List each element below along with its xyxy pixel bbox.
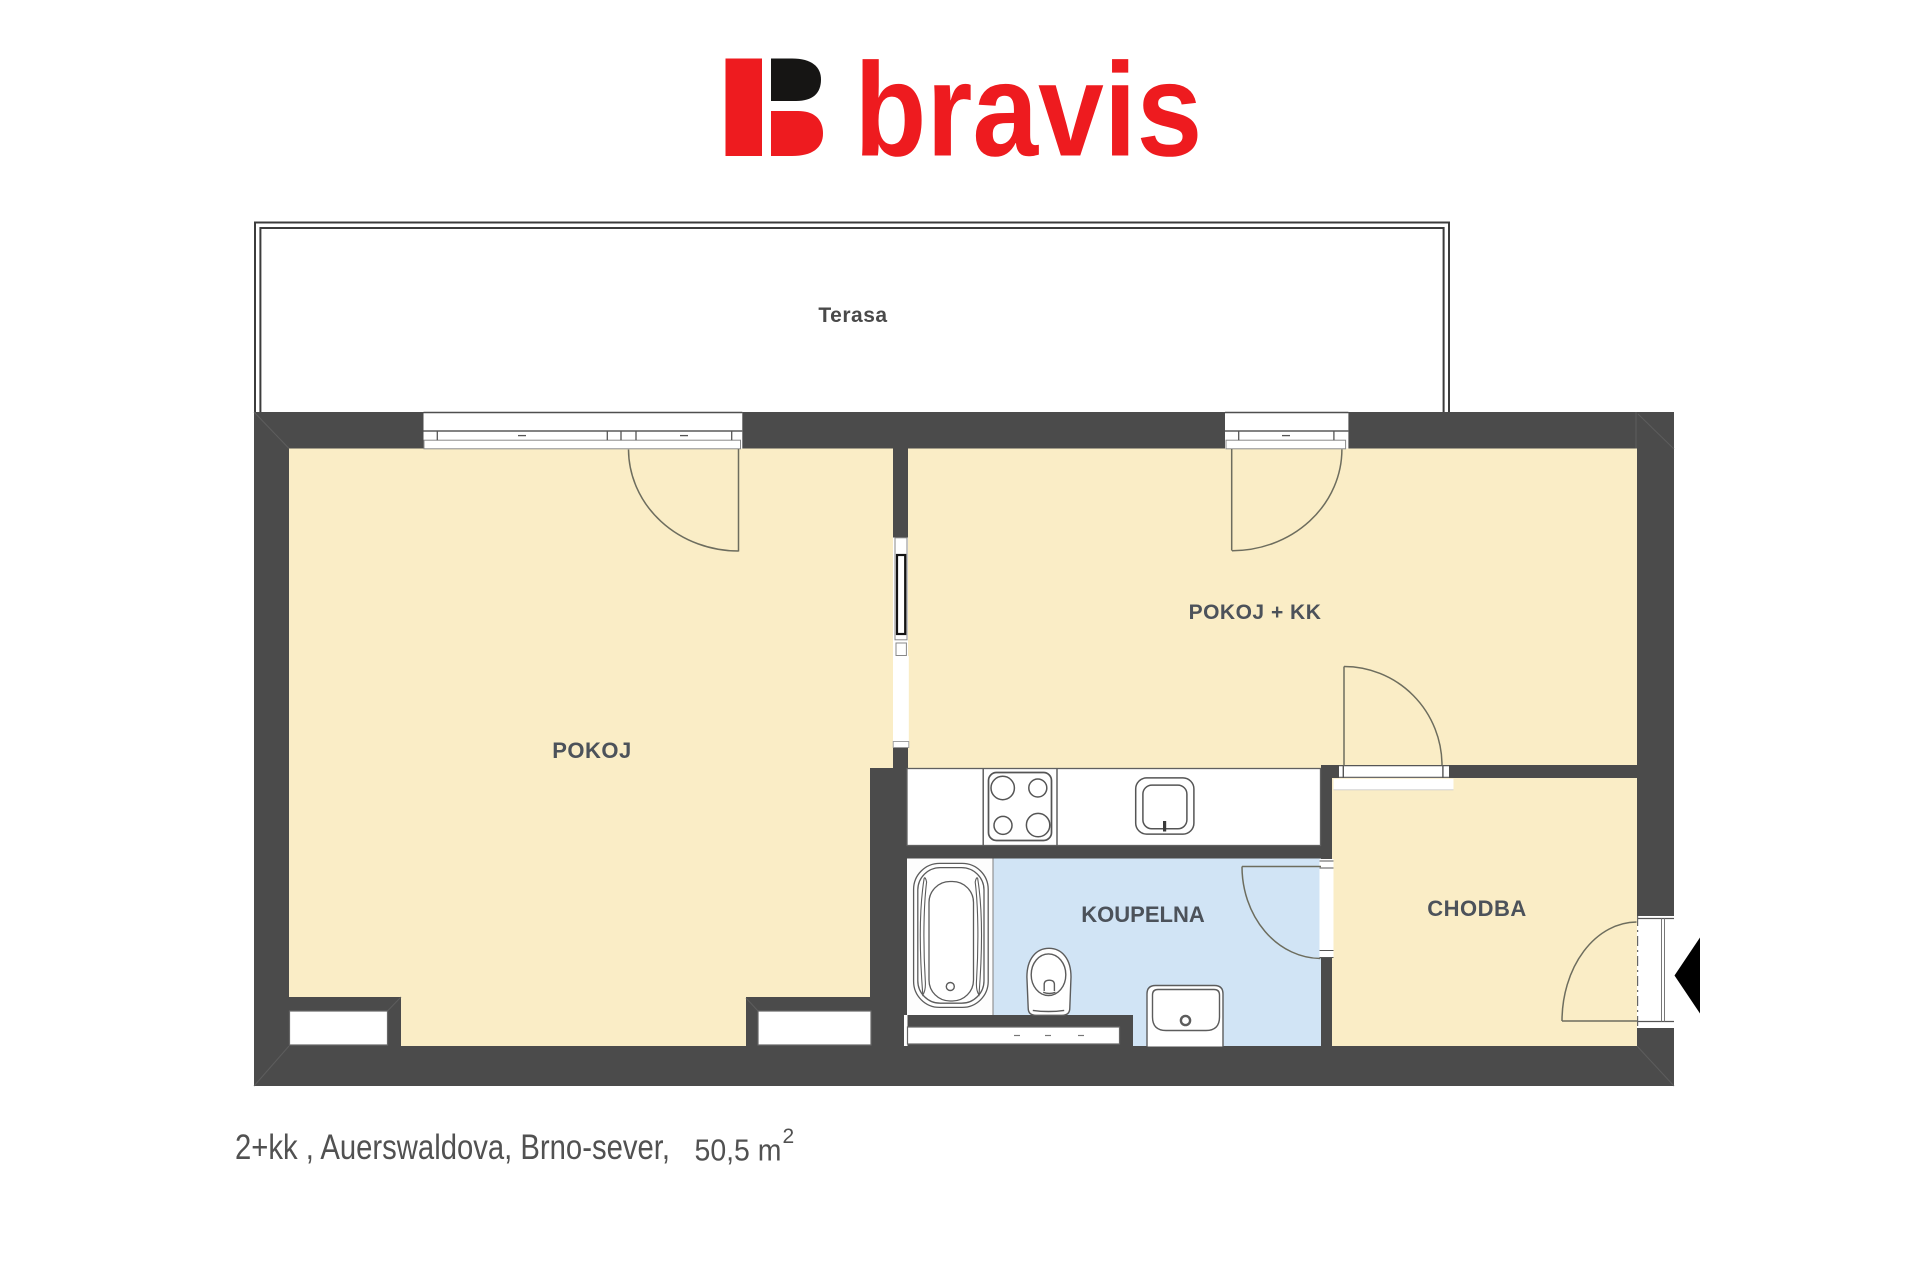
- svg-text:POKOJ + KK: POKOJ + KK: [1189, 601, 1322, 624]
- svg-text:2: 2: [783, 1125, 795, 1148]
- svg-text:50,5 m: 50,5 m: [695, 1133, 782, 1168]
- svg-text:POKOJ: POKOJ: [552, 738, 632, 763]
- svg-text:bravis: bravis: [854, 37, 1202, 185]
- svg-text:KOUPELNA: KOUPELNA: [1081, 902, 1205, 927]
- svg-text:CHODBA: CHODBA: [1427, 896, 1527, 921]
- svg-text:2+kk , Auerswaldova, Brno-seve: 2+kk , Auerswaldova, Brno-sever,: [235, 1128, 670, 1167]
- svg-text:Terasa: Terasa: [818, 304, 887, 327]
